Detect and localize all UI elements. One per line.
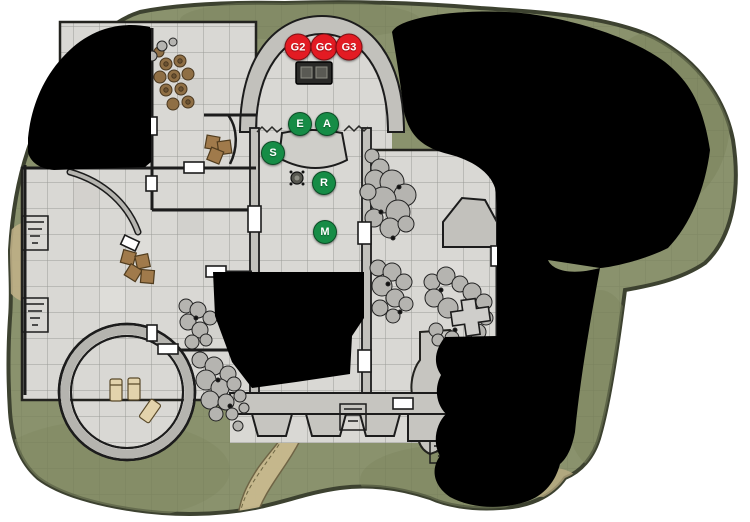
token-label: GC [316, 41, 333, 53]
fog-region-northwest [28, 25, 151, 170]
token-label: A [323, 118, 331, 130]
token-A[interactable]: A [315, 112, 339, 136]
door [158, 344, 178, 354]
door [147, 325, 157, 341]
battle-map-canvas[interactable] [0, 0, 750, 522]
statue-icon [290, 171, 305, 186]
token-M[interactable]: M [313, 220, 337, 244]
token-label: R [320, 177, 328, 189]
door [358, 350, 371, 372]
door [248, 206, 261, 232]
door [146, 176, 157, 191]
dais [279, 130, 347, 168]
vtt-stage: G2 GC G3 E A S R M [0, 0, 750, 522]
token-E[interactable]: E [288, 112, 312, 136]
token-label: G2 [291, 41, 306, 53]
door [358, 222, 371, 244]
token-label: G3 [342, 41, 357, 53]
token-GC[interactable]: GC [311, 34, 338, 61]
device-icon [296, 62, 332, 84]
token-S[interactable]: S [261, 141, 285, 165]
token-G3[interactable]: G3 [336, 34, 363, 61]
token-label: E [296, 118, 303, 130]
token-G2[interactable]: G2 [285, 34, 312, 61]
token-label: M [320, 226, 329, 238]
door [393, 398, 413, 409]
token-R[interactable]: R [312, 171, 336, 195]
token-label: S [269, 147, 276, 159]
door [184, 162, 204, 173]
